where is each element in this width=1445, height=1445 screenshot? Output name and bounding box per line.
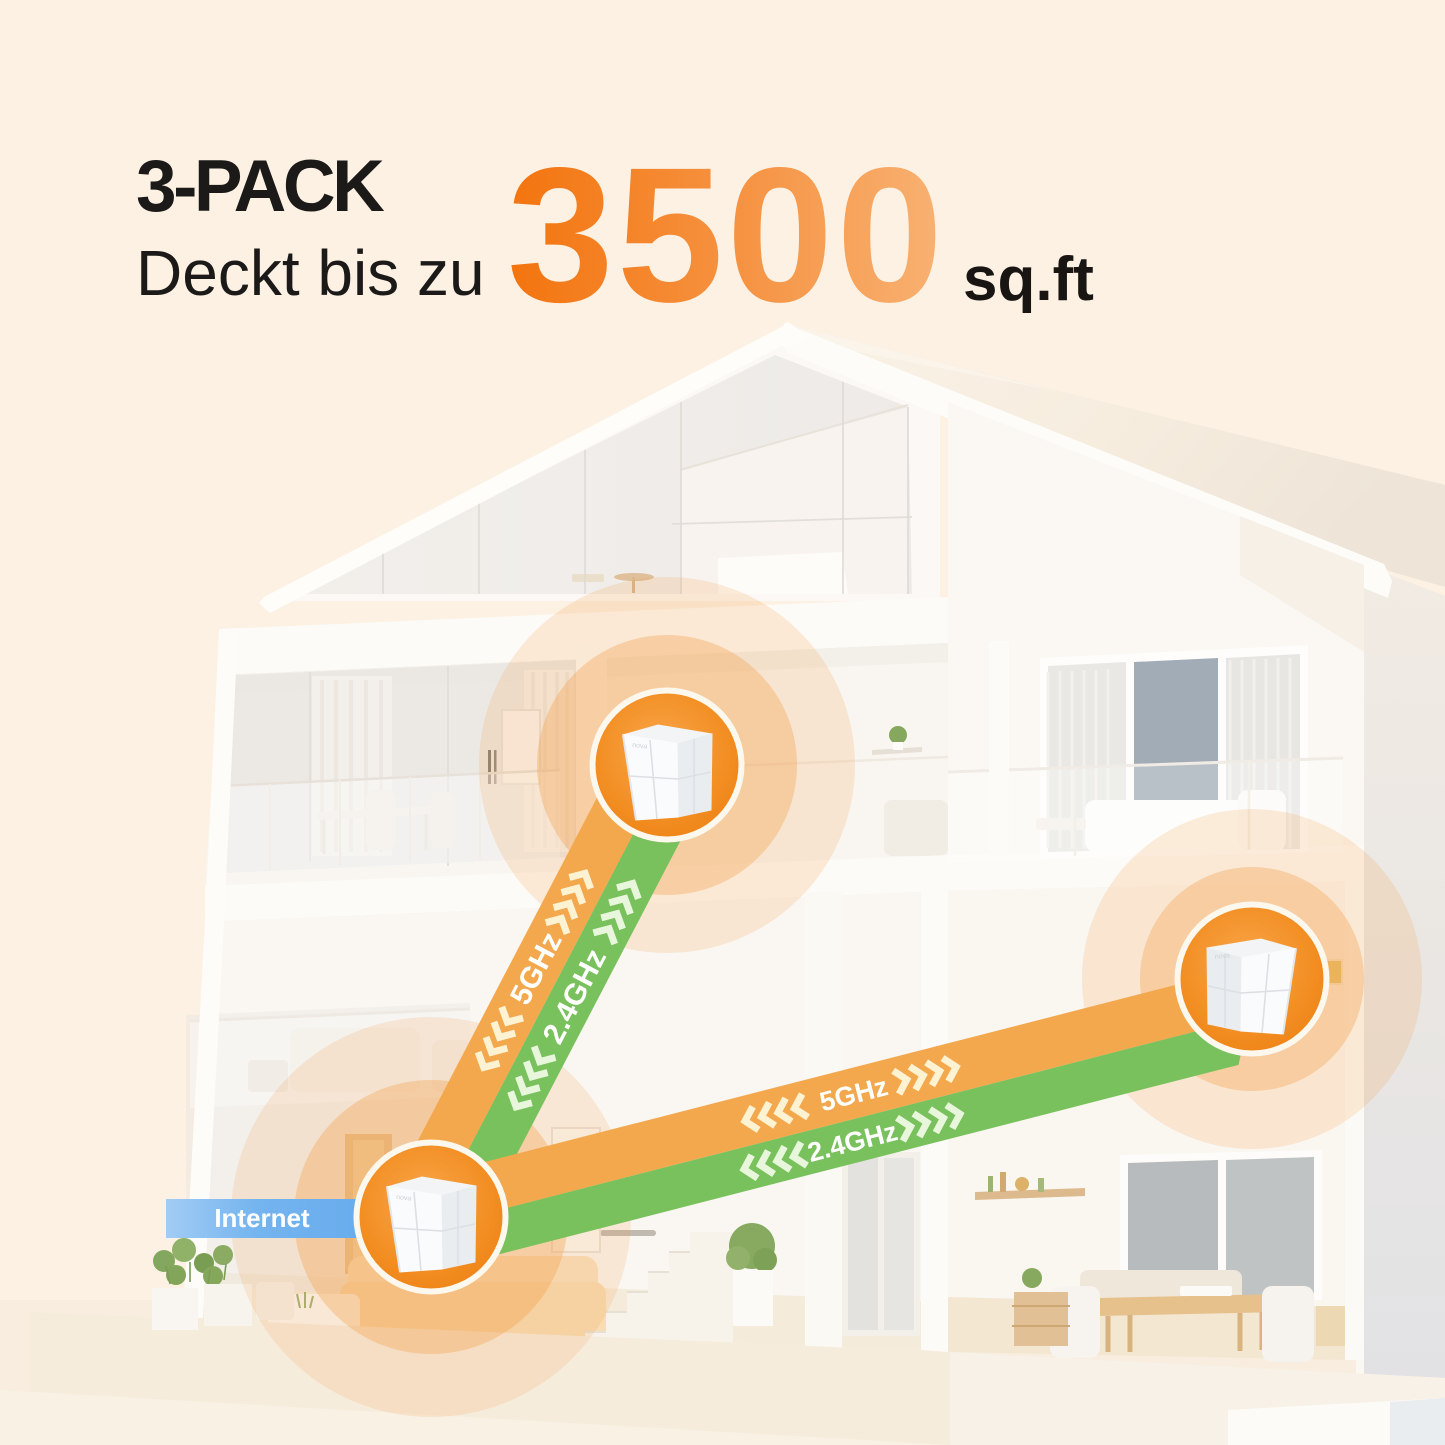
svg-text:Deckt bis zu: Deckt bis zu [136, 237, 485, 309]
svg-text:3-PACK: 3-PACK [136, 146, 385, 227]
svg-text:Internet: Internet [214, 1203, 310, 1233]
svg-text:sq.ft: sq.ft [963, 245, 1094, 314]
svg-text:3500: 3500 [507, 127, 946, 342]
